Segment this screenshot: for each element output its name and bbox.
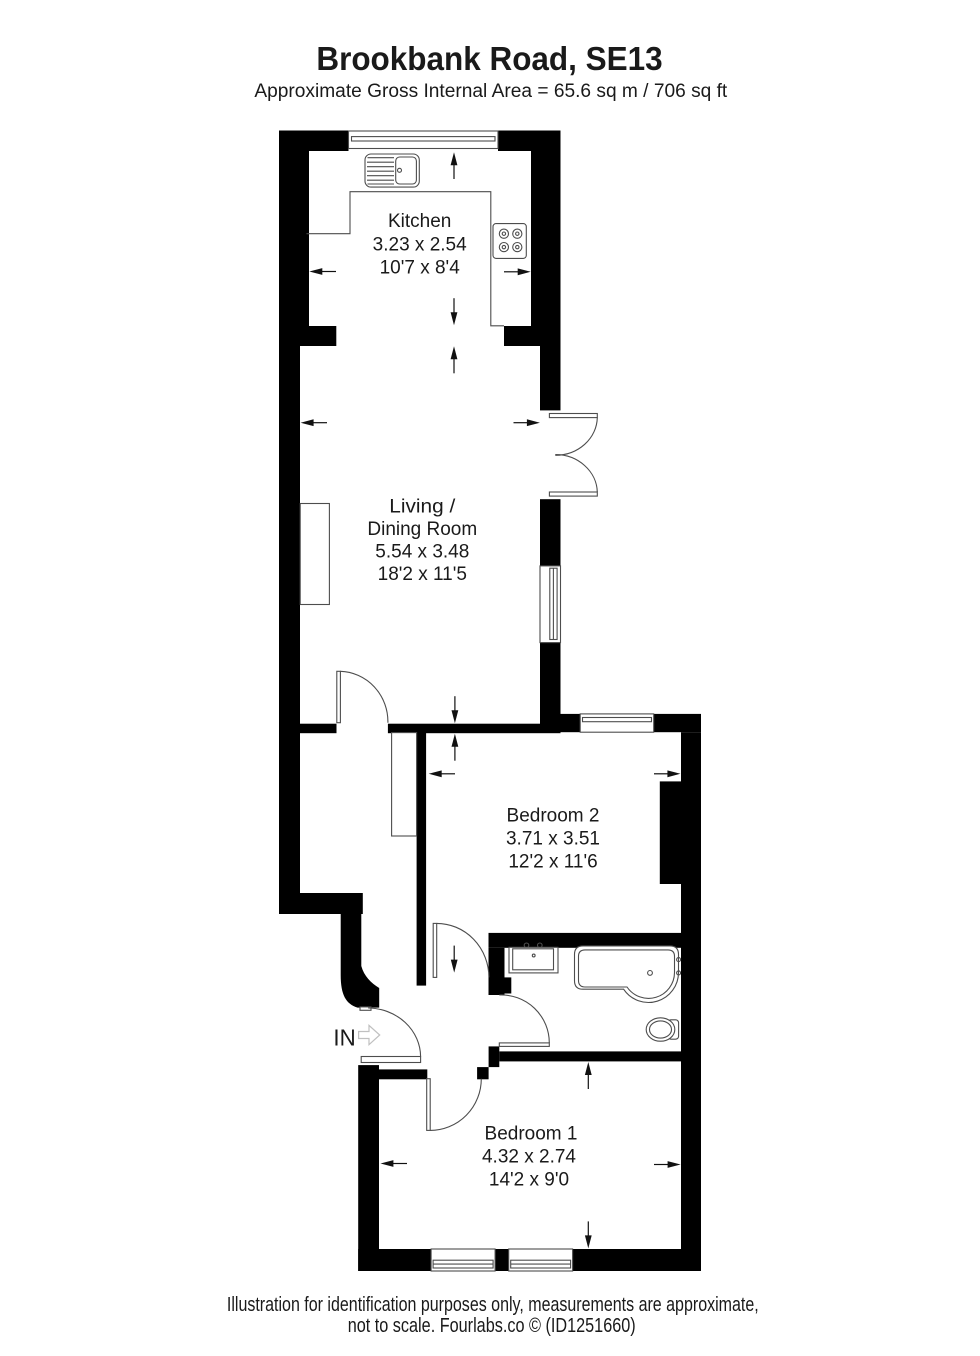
- svg-text:3.71 x 3.51: 3.71 x 3.51: [506, 828, 600, 849]
- svg-text:Approximate Gross Internal Are: Approximate Gross Internal Area = 65.6 s…: [254, 80, 727, 102]
- svg-text:10'7 x 8'4: 10'7 x 8'4: [380, 258, 461, 279]
- svg-text:4.32 x 2.74: 4.32 x 2.74: [482, 1147, 576, 1168]
- svg-text:Living /: Living /: [389, 496, 456, 517]
- svg-text:Kitchen: Kitchen: [388, 211, 451, 232]
- svg-text:Bedroom 1: Bedroom 1: [485, 1124, 578, 1145]
- svg-text:Bedroom 2: Bedroom 2: [507, 805, 600, 826]
- svg-text:18'2 x 11'5: 18'2 x 11'5: [378, 564, 467, 585]
- svg-text:not to scale. Fourlabs.co © (I: not to scale. Fourlabs.co © (ID1251660): [348, 1315, 636, 1337]
- svg-text:3.23 x 2.54: 3.23 x 2.54: [373, 234, 467, 255]
- svg-text:Dining Room: Dining Room: [367, 519, 477, 540]
- svg-text:12'2 x 11'6: 12'2 x 11'6: [508, 851, 597, 872]
- svg-text:Brookbank Road, SE13: Brookbank Road, SE13: [316, 41, 662, 78]
- svg-text:5.54 x 3.48: 5.54 x 3.48: [375, 541, 469, 562]
- svg-text:Illustration for identificatio: Illustration for identification purposes…: [227, 1294, 759, 1316]
- svg-text:IN: IN: [333, 1024, 355, 1050]
- svg-text:14'2 x 9'0: 14'2 x 9'0: [489, 1170, 569, 1191]
